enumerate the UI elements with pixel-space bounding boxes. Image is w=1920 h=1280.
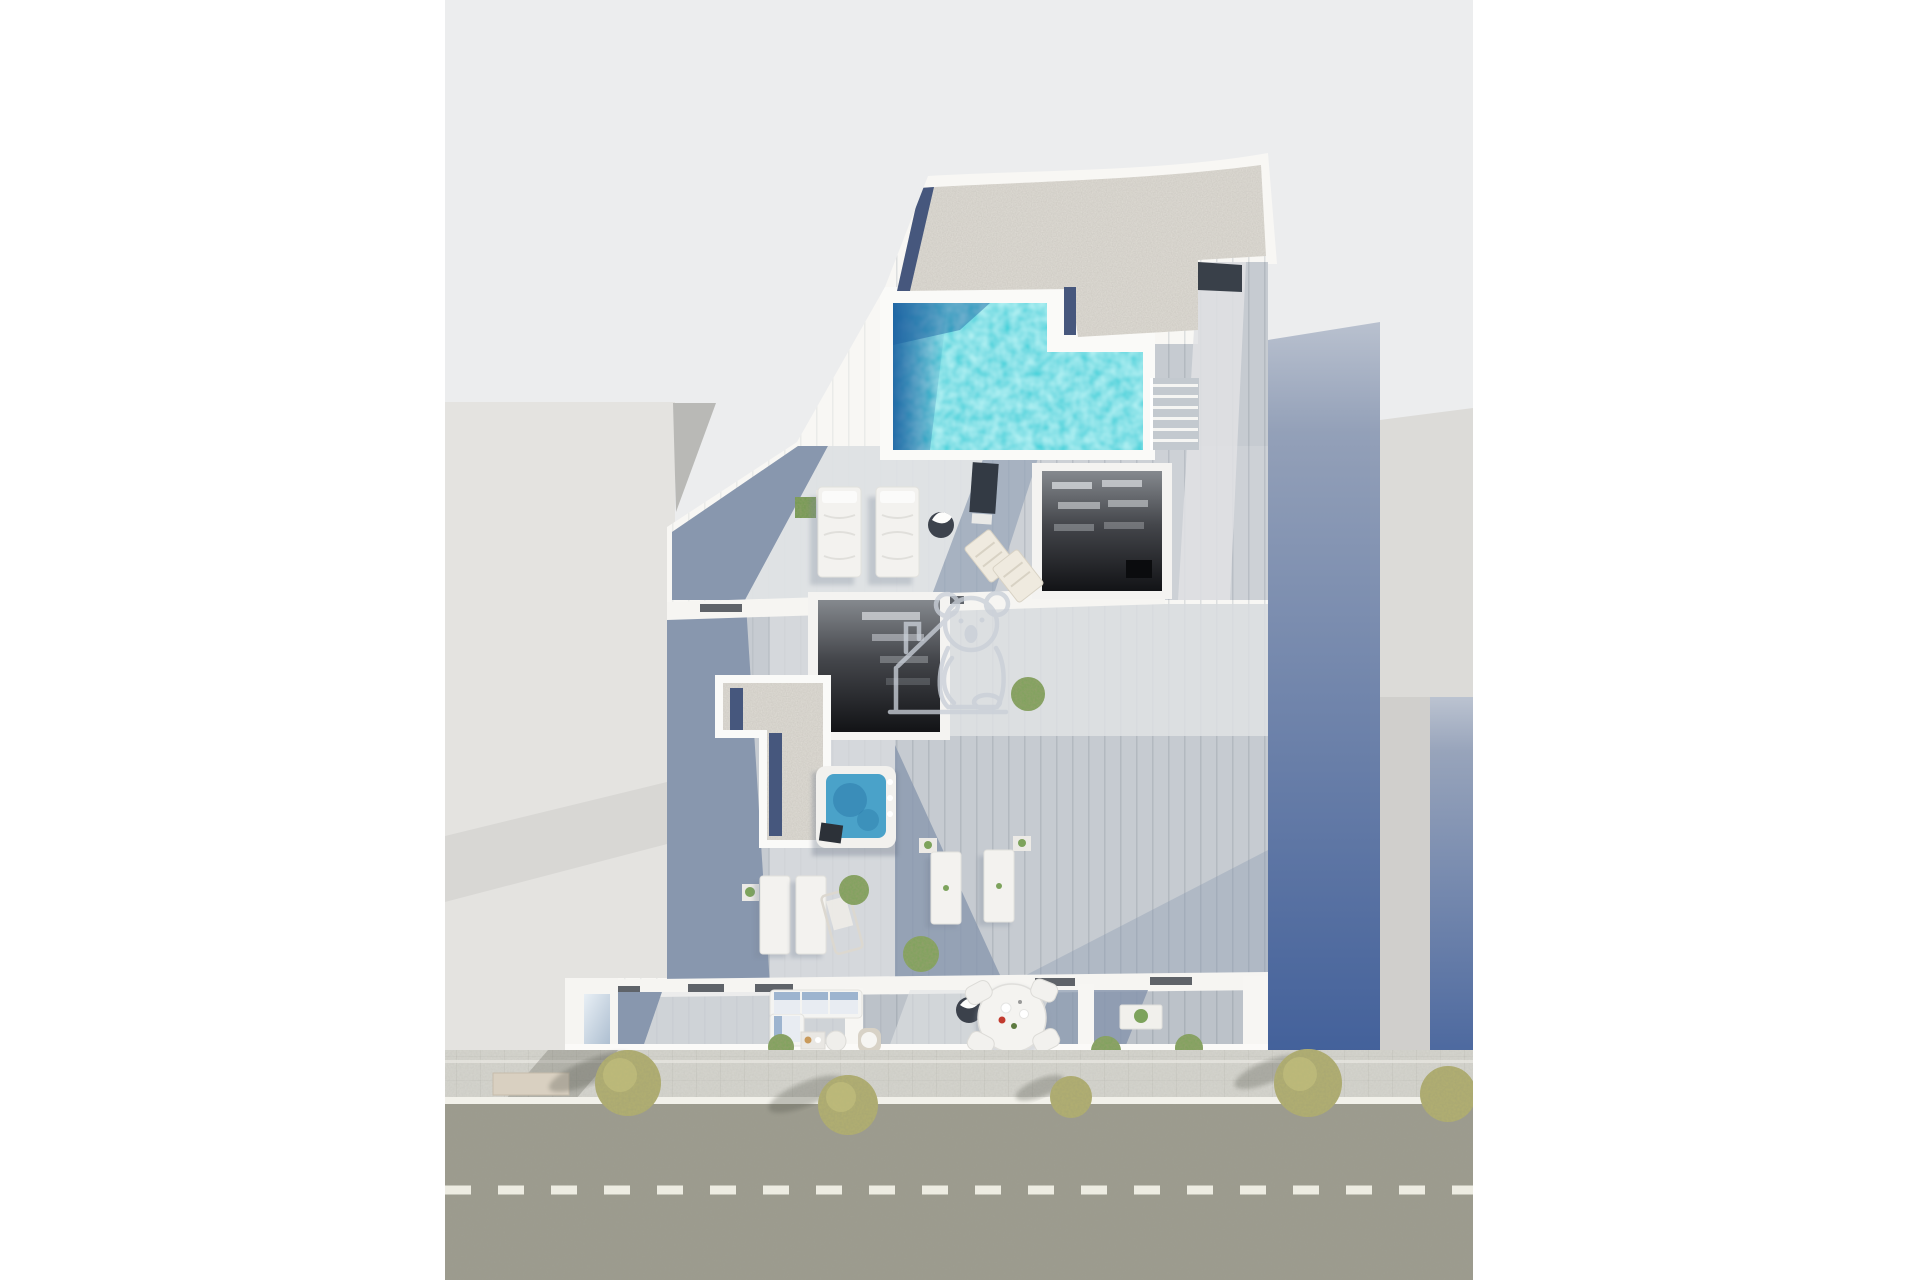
render-canvas (0, 0, 1920, 1280)
shrub (903, 936, 939, 972)
right-facade-blue (1268, 322, 1380, 1062)
navy-edge-strip-vertical (1064, 287, 1076, 335)
stairs-rail (1150, 378, 1153, 450)
potted-plant (745, 887, 755, 897)
street-tree (1050, 1076, 1092, 1118)
right-neighbor-lower (1380, 697, 1430, 1062)
tree-highlight (603, 1058, 637, 1092)
lounger (760, 876, 790, 954)
right-neighbor-building (1268, 322, 1473, 1062)
watermark-koala-nose (965, 625, 978, 643)
left-neighbor-roof (445, 402, 675, 1050)
roof-access-door (1198, 262, 1242, 292)
tree-highlight (1283, 1057, 1317, 1091)
balcony-side-wall (1243, 976, 1268, 1050)
watermark-koala-eye (980, 618, 985, 623)
table-plant (1134, 1009, 1148, 1023)
dining-set (963, 977, 1062, 1059)
street-tree (1420, 1066, 1476, 1122)
door-slit (700, 604, 742, 612)
shrub (839, 875, 869, 905)
window-glint (584, 994, 610, 1044)
watermark-koala-eye (959, 619, 964, 624)
balcony-divider (1078, 984, 1094, 1050)
sun-bed (818, 487, 861, 577)
navy-edge-strip (730, 688, 743, 730)
hot-tub (812, 766, 898, 856)
coffee-table-round (826, 1031, 846, 1051)
pool-stairs (1150, 378, 1199, 450)
navy-edge-strip (769, 733, 782, 836)
terrace-right-sunlit (895, 604, 1268, 736)
tree-highlight (826, 1082, 856, 1112)
lounger (796, 876, 826, 954)
door-slit (1150, 977, 1192, 985)
stairwell-skylight-right (1032, 463, 1172, 599)
shrub (1011, 677, 1045, 711)
sun-bed (876, 487, 919, 577)
hot-tub-step (819, 823, 843, 844)
skylight-dark-box (1126, 560, 1152, 578)
right-facade-lower (1430, 697, 1473, 1062)
aerial-render (0, 0, 1920, 1280)
door-slit (688, 984, 724, 992)
right-neighbor-roof (1380, 408, 1473, 697)
